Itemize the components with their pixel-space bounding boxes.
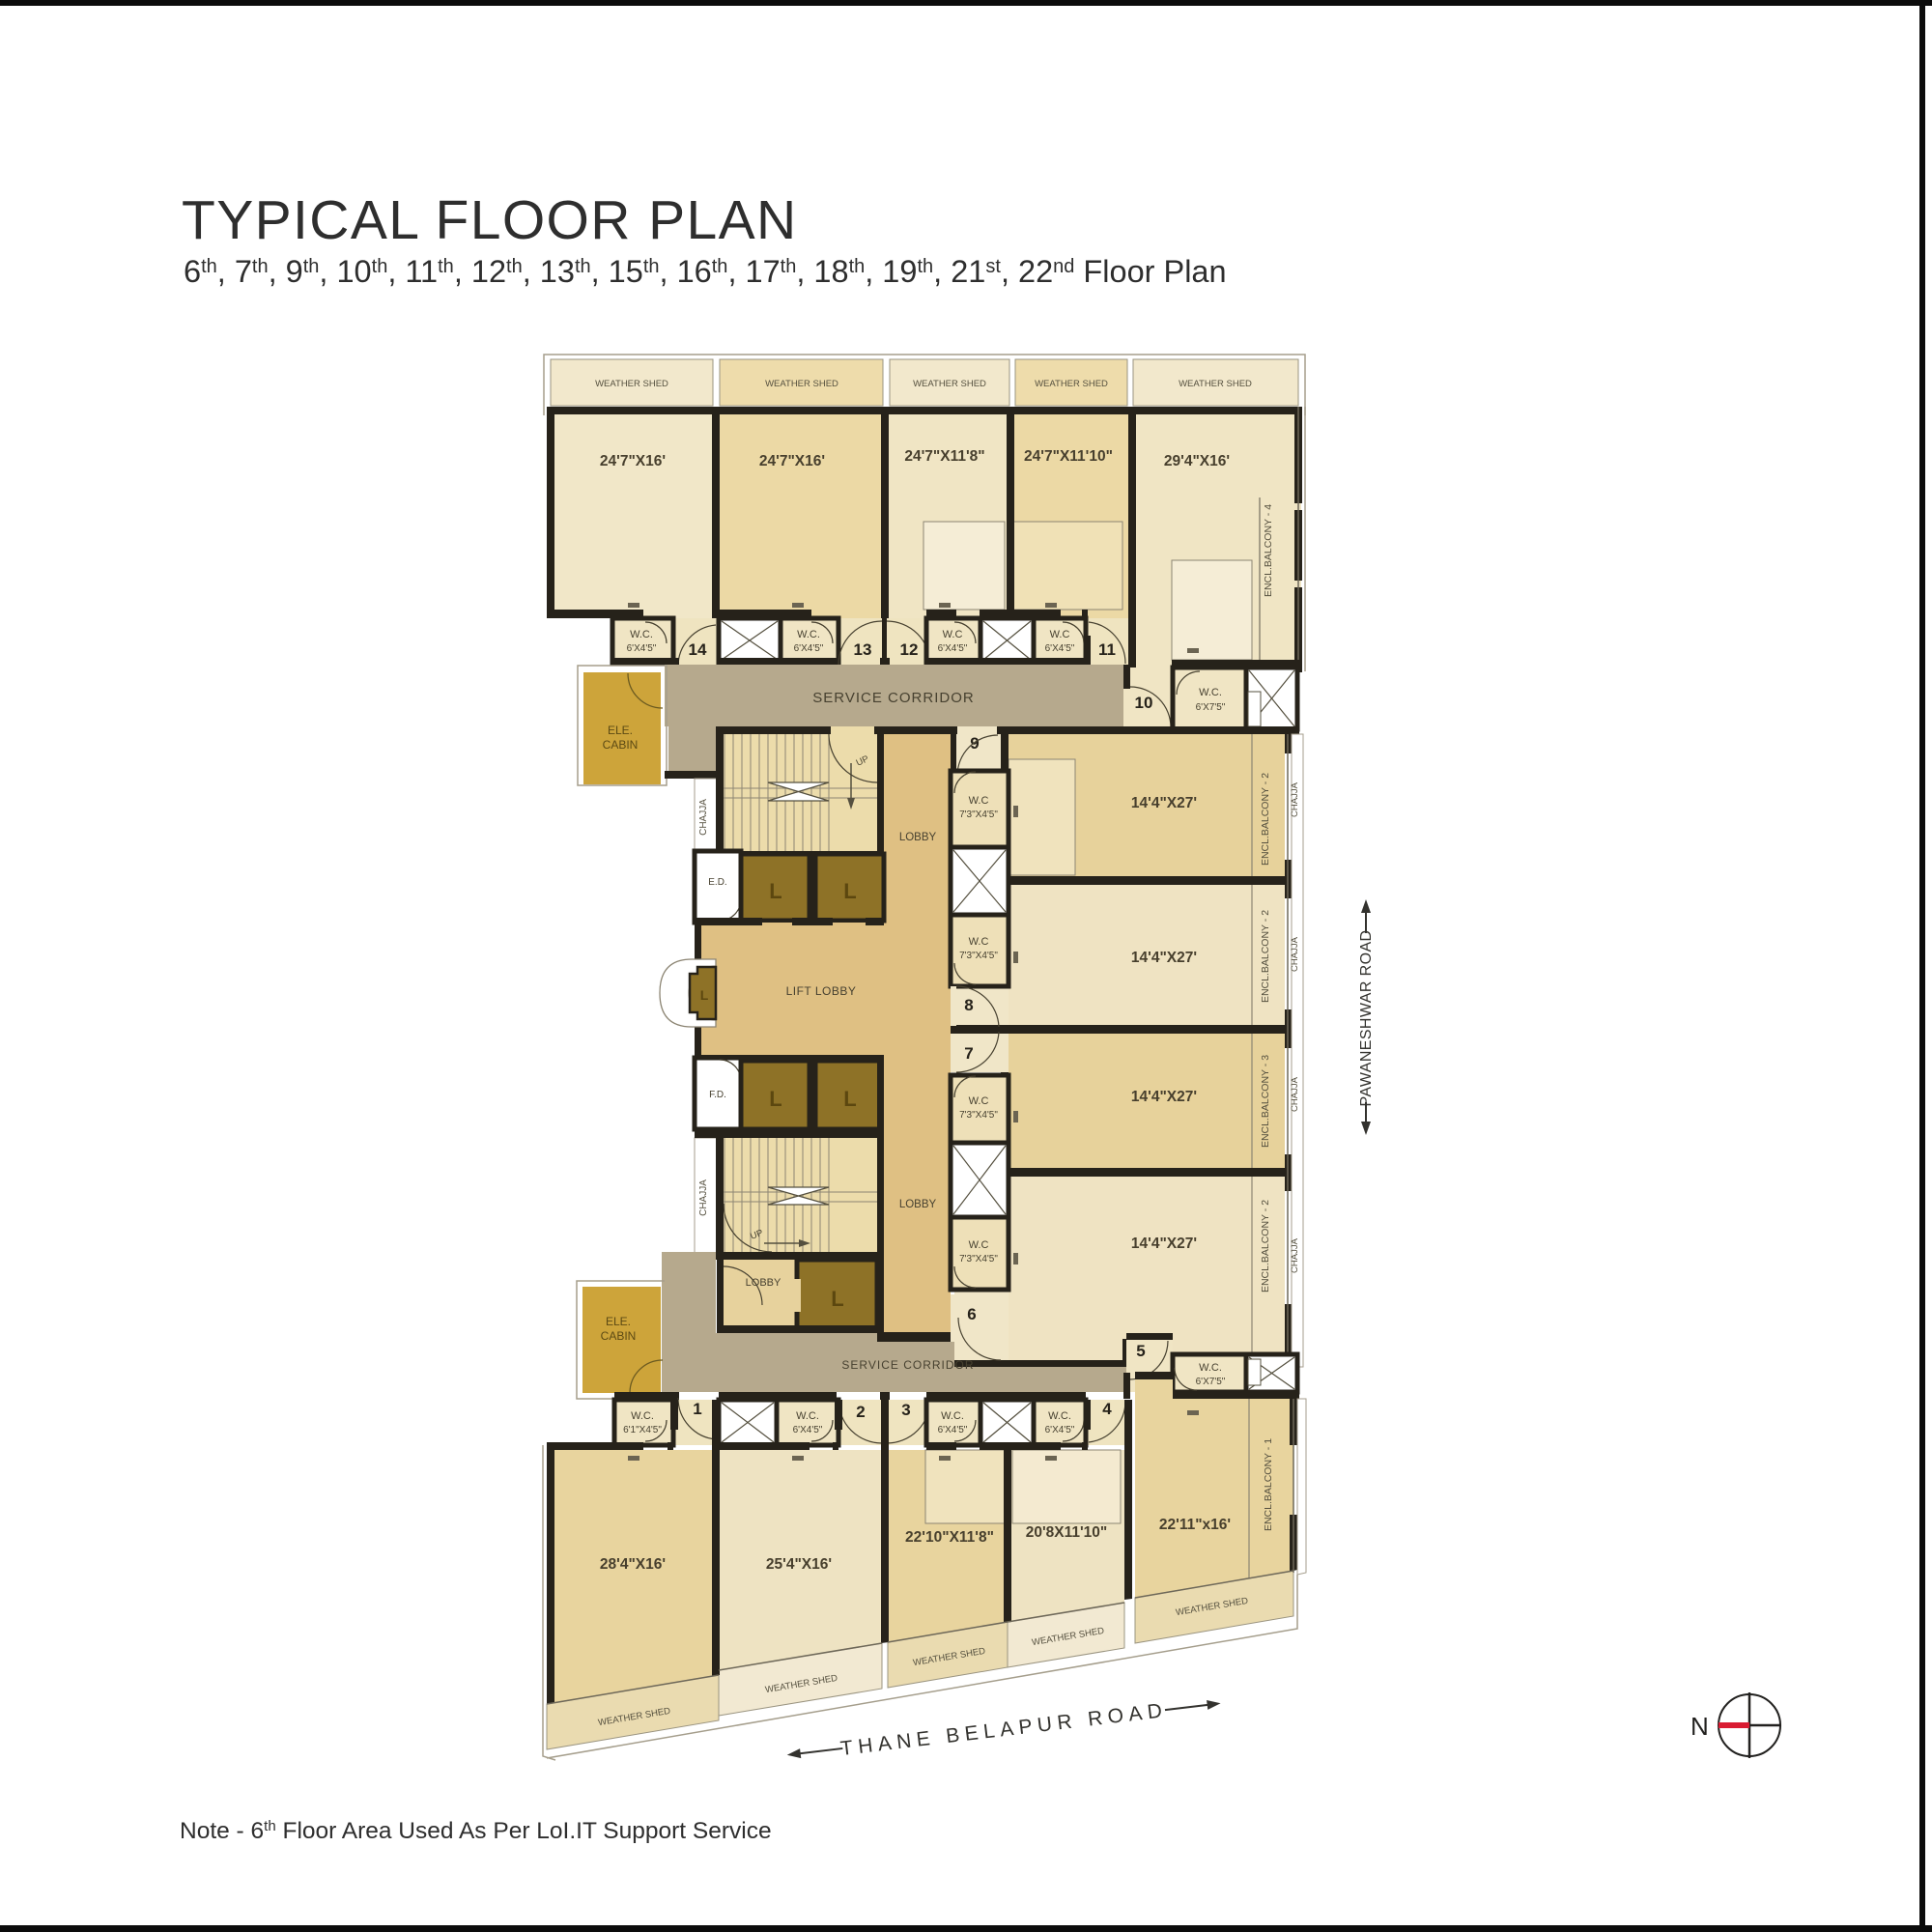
svg-text:CHAJJA: CHAJJA <box>1290 781 1300 817</box>
svg-text:W.C.: W.C. <box>1199 687 1222 698</box>
svg-text:F.D.: F.D. <box>709 1090 726 1100</box>
svg-text:14: 14 <box>689 640 707 659</box>
svg-text:N: N <box>1690 1712 1709 1741</box>
svg-text:W.C: W.C <box>969 1095 989 1107</box>
svg-text:6: 6 <box>967 1305 976 1323</box>
svg-text:4: 4 <box>1102 1400 1112 1418</box>
svg-text:ENCL.BALCONY - 2: ENCL.BALCONY - 2 <box>1260 910 1271 1003</box>
svg-text:CHAJJA: CHAJJA <box>698 1179 709 1216</box>
svg-text:W.C: W.C <box>969 1239 989 1251</box>
svg-text:24'7"X11'8": 24'7"X11'8" <box>904 448 984 465</box>
svg-text:28'4"X16': 28'4"X16' <box>600 1556 666 1573</box>
svg-text:6'X4'5": 6'X4'5" <box>938 1425 968 1435</box>
svg-text:CABIN: CABIN <box>603 738 639 752</box>
svg-text:29'4"X16': 29'4"X16' <box>1164 453 1230 469</box>
svg-text:6'X4'5": 6'X4'5" <box>793 1425 823 1435</box>
svg-text:CABIN: CABIN <box>601 1329 637 1343</box>
svg-text:W.C.: W.C. <box>631 1410 654 1422</box>
svg-text:6'1"X4'5": 6'1"X4'5" <box>623 1425 662 1435</box>
svg-text:5: 5 <box>1136 1342 1145 1360</box>
svg-text:6'X4'5": 6'X4'5" <box>1045 643 1075 654</box>
svg-text:14'4"X27': 14'4"X27' <box>1131 1089 1197 1105</box>
svg-text:ENCL.BALCONY - 2: ENCL.BALCONY - 2 <box>1260 1200 1271 1293</box>
svg-text:7'3"X4'5": 7'3"X4'5" <box>959 951 998 961</box>
svg-text:7'3"X4'5": 7'3"X4'5" <box>959 1110 998 1121</box>
svg-text:6'X4'5": 6'X4'5" <box>1045 1425 1075 1435</box>
svg-text:7: 7 <box>964 1044 973 1063</box>
svg-text:WEATHER SHED: WEATHER SHED <box>595 379 668 389</box>
svg-text:3: 3 <box>901 1401 910 1419</box>
svg-text:14'4"X27': 14'4"X27' <box>1131 1236 1197 1252</box>
svg-text:W.C.: W.C. <box>941 1410 964 1422</box>
svg-text:SERVICE CORRIDOR: SERVICE CORRIDOR <box>812 690 974 706</box>
svg-text:L: L <box>700 987 709 1003</box>
svg-text:CHAJJA: CHAJJA <box>1290 936 1300 972</box>
svg-text:14'4"X27': 14'4"X27' <box>1131 795 1197 811</box>
svg-text:1: 1 <box>693 1400 701 1418</box>
svg-text:CHAJJA: CHAJJA <box>1290 1237 1300 1273</box>
svg-text:W.C.: W.C. <box>1199 1362 1222 1374</box>
svg-text:13: 13 <box>854 640 872 659</box>
svg-text:LOBBY: LOBBY <box>899 832 937 843</box>
svg-text:ENCL.BALCONY - 4: ENCL.BALCONY - 4 <box>1263 504 1274 597</box>
svg-text:WEATHER SHED: WEATHER SHED <box>1035 379 1108 389</box>
svg-text:W.C: W.C <box>943 629 963 640</box>
svg-text:ENCL.BALCONY - 3: ENCL.BALCONY - 3 <box>1260 1055 1271 1148</box>
svg-text:W.C: W.C <box>1050 629 1070 640</box>
svg-text:2: 2 <box>856 1403 865 1421</box>
svg-text:L: L <box>769 1087 781 1111</box>
svg-text:LIFT LOBBY: LIFT LOBBY <box>786 984 857 998</box>
svg-text:W.C: W.C <box>969 936 989 948</box>
svg-text:E.D.: E.D. <box>708 877 726 888</box>
svg-text:WEATHER SHED: WEATHER SHED <box>765 379 838 389</box>
svg-text:9: 9 <box>970 734 979 753</box>
svg-text:TYPICAL FLOOR PLAN: TYPICAL FLOOR PLAN <box>182 189 798 251</box>
svg-text:PAWANESHWAR ROAD: PAWANESHWAR ROAD <box>1358 929 1375 1106</box>
svg-text:7'3"X4'5": 7'3"X4'5" <box>959 1254 998 1264</box>
svg-text:ELE.: ELE. <box>608 724 633 737</box>
svg-text:6'X7'5": 6'X7'5" <box>1196 702 1226 713</box>
svg-text:22'11"x16': 22'11"x16' <box>1159 1517 1231 1533</box>
svg-text:WEATHER SHED: WEATHER SHED <box>913 379 986 389</box>
svg-text:8: 8 <box>964 996 973 1014</box>
svg-text:10: 10 <box>1135 694 1153 712</box>
svg-text:L: L <box>843 879 856 903</box>
svg-text:LOBBY: LOBBY <box>746 1277 781 1289</box>
svg-text:6'X4'5": 6'X4'5" <box>938 643 968 654</box>
svg-text:W.C: W.C <box>969 795 989 807</box>
svg-text:22'10"X11'8": 22'10"X11'8" <box>905 1529 994 1546</box>
svg-text:12: 12 <box>900 640 919 659</box>
svg-text:W.C.: W.C. <box>630 629 653 640</box>
svg-text:ENCL.BALCONY - 2: ENCL.BALCONY - 2 <box>1260 773 1271 866</box>
svg-text:11: 11 <box>1098 640 1116 659</box>
svg-text:SERVICE CORRIDOR: SERVICE CORRIDOR <box>841 1358 974 1372</box>
svg-text:6'X4'5": 6'X4'5" <box>627 643 657 654</box>
svg-text:20'8X11'10": 20'8X11'10" <box>1026 1524 1108 1541</box>
svg-text:WEATHER SHED: WEATHER SHED <box>1179 379 1252 389</box>
svg-text:W.C.: W.C. <box>797 629 820 640</box>
svg-text:W.C.: W.C. <box>1048 1410 1071 1422</box>
svg-text:ELE.: ELE. <box>606 1315 631 1328</box>
svg-text:L: L <box>843 1087 856 1111</box>
svg-text:24'7"X11'10": 24'7"X11'10" <box>1024 448 1113 465</box>
svg-text:W.C.: W.C. <box>796 1410 819 1422</box>
svg-text:ENCL.BALCONY - 1: ENCL.BALCONY - 1 <box>1263 1438 1274 1531</box>
svg-text:24'7"X16': 24'7"X16' <box>600 453 666 469</box>
svg-text:6'X7'5": 6'X7'5" <box>1196 1377 1226 1387</box>
svg-text:25'4"X16': 25'4"X16' <box>766 1556 832 1573</box>
svg-text:LOBBY: LOBBY <box>899 1199 937 1210</box>
svg-text:CHAJJA: CHAJJA <box>1290 1076 1300 1112</box>
svg-text:6'X4'5": 6'X4'5" <box>794 643 824 654</box>
svg-text:14'4"X27': 14'4"X27' <box>1131 950 1197 966</box>
svg-text:CHAJJA: CHAJJA <box>698 799 709 836</box>
svg-text:7'3"X4'5": 7'3"X4'5" <box>959 810 998 820</box>
svg-text:24'7"X16': 24'7"X16' <box>759 453 825 469</box>
svg-text:L: L <box>769 879 781 903</box>
svg-text:L: L <box>831 1287 843 1311</box>
